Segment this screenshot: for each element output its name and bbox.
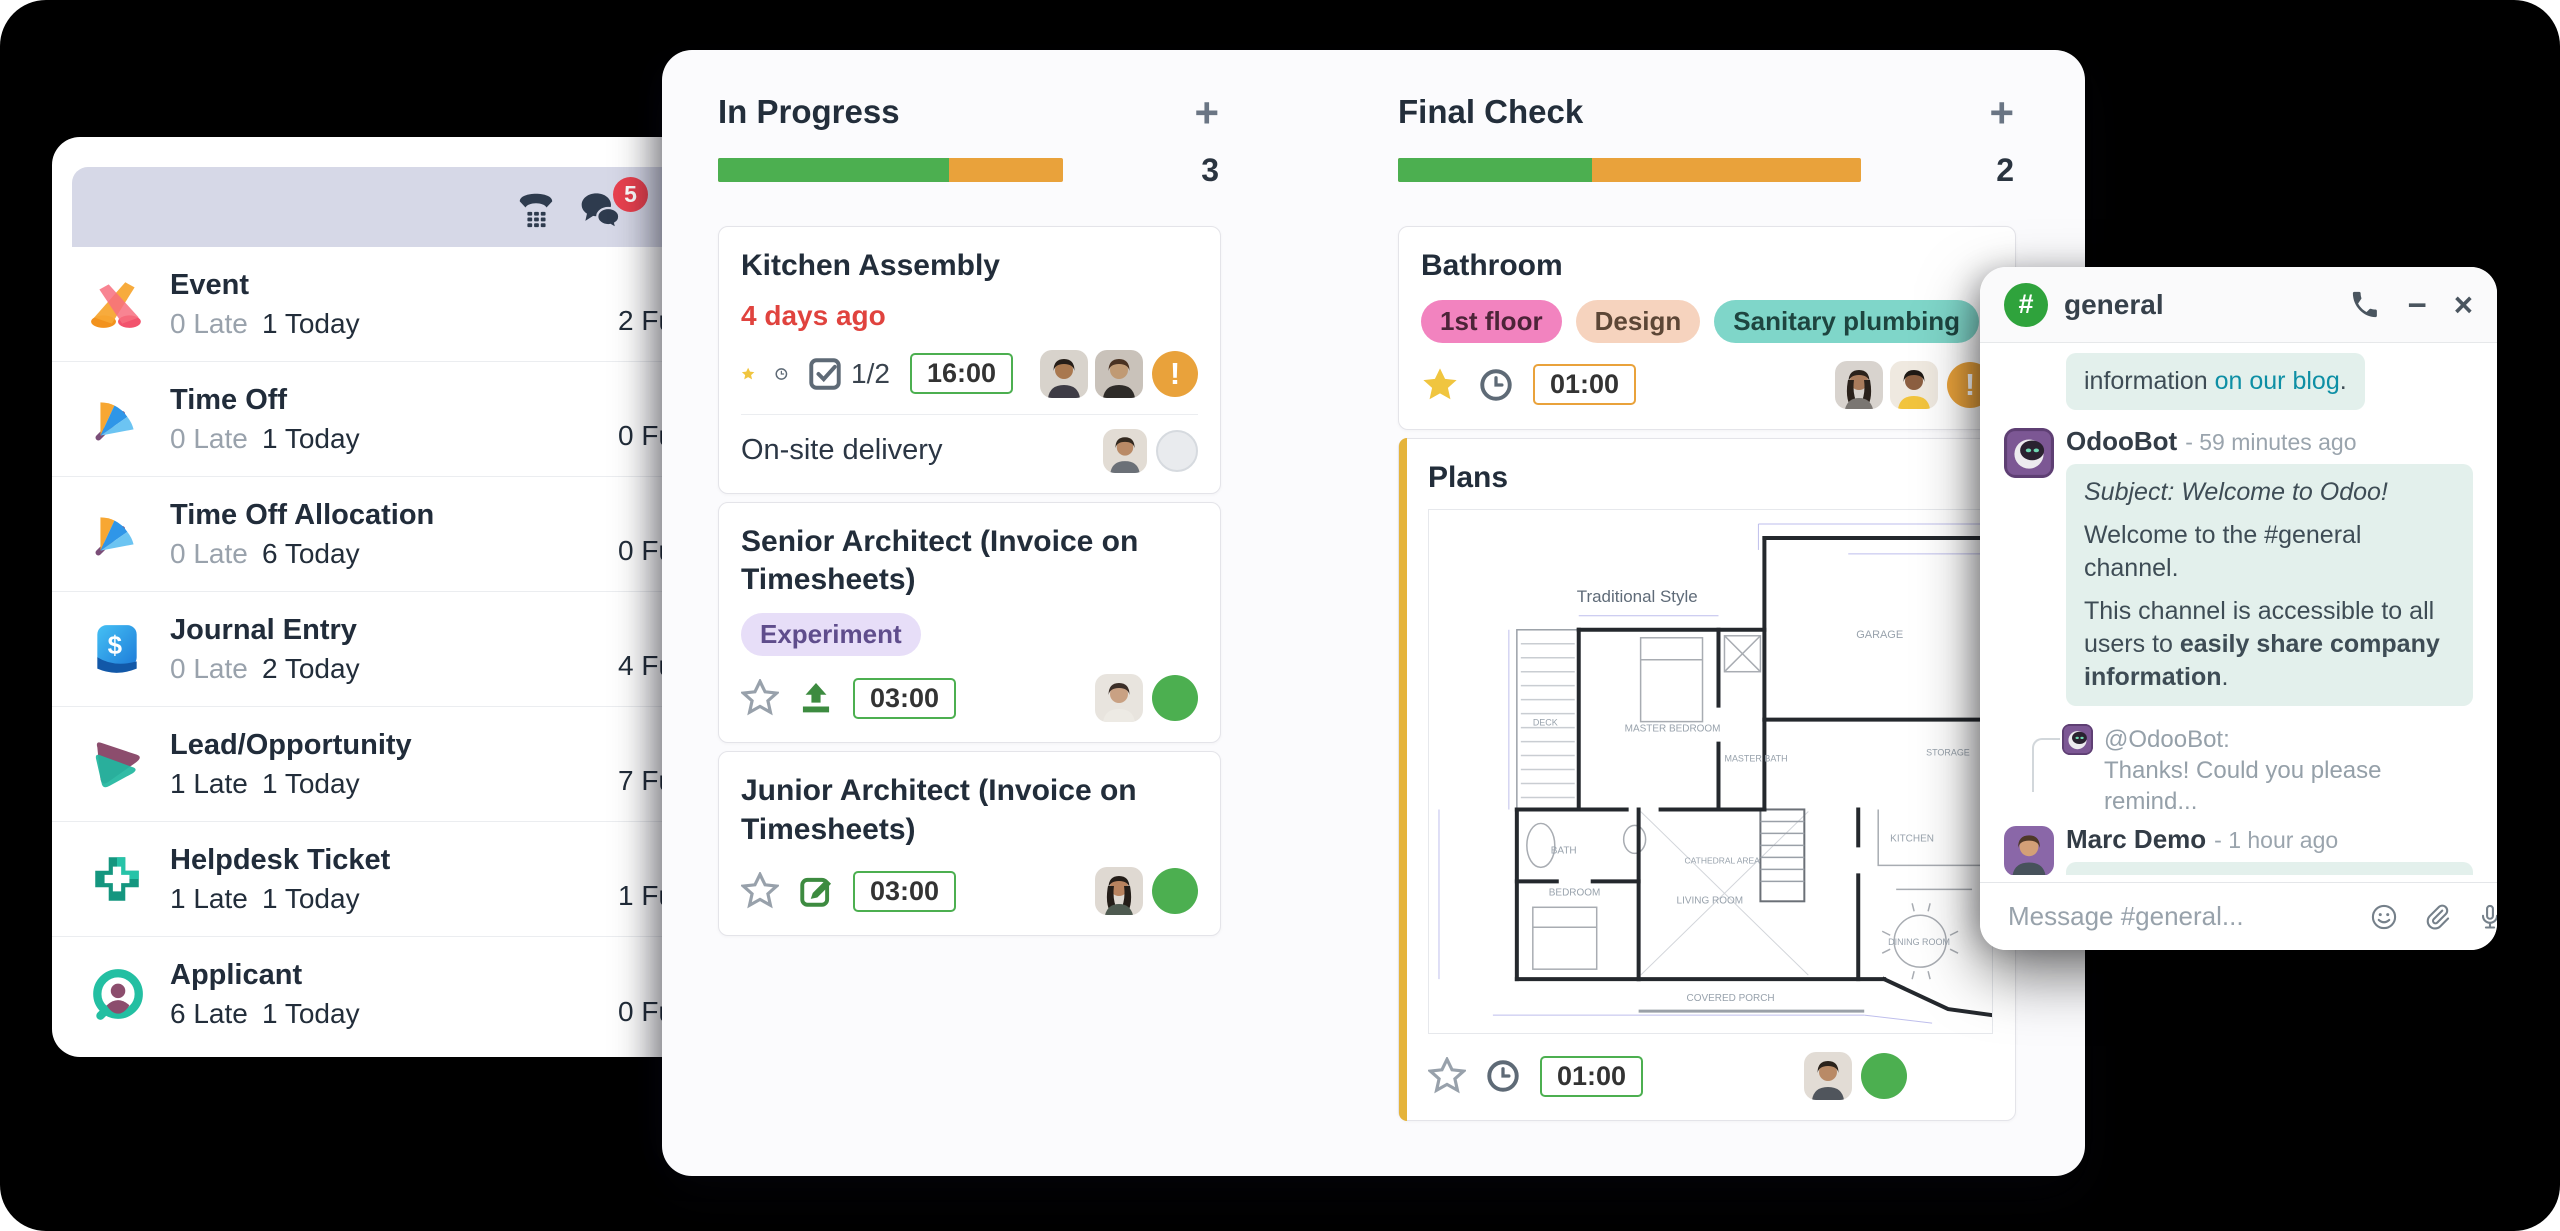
avatar (1095, 350, 1143, 398)
allocated-hours-chip[interactable]: 16:00 (910, 353, 1013, 394)
subtask-row[interactable]: On-site delivery (741, 414, 1198, 473)
avatar (1095, 674, 1143, 722)
late-count: 0 Late (170, 538, 262, 570)
tag-1st-floor: 1st floor (1421, 300, 1562, 343)
floorplan-style-label: Traditional Style (1577, 587, 1698, 606)
svg-text:MASTER BEDROOM: MASTER BEDROOM (1625, 724, 1721, 735)
kanban-column-final-check: Final Check + 2 Bathroom 1st floor Desig… (1398, 94, 2016, 1129)
channel-hash-icon: # (2004, 283, 2048, 327)
today-count: 1 Today (262, 423, 360, 455)
message-bubble: Subject: Welcome to Odoo! Welcome to the… (2066, 464, 2473, 706)
odoobot-avatar-small (2062, 724, 2093, 755)
activity-summary-panel: 5 Event 0 Late 1 Today 2 Fu (52, 137, 700, 1057)
kanban-card-plans[interactable]: Plans (1398, 438, 2016, 1121)
channel-name: general (2064, 289, 2164, 321)
checklist-progress[interactable]: 1/2 (808, 357, 890, 391)
chat-window: # general − × information on our blog. O… (1980, 267, 2497, 950)
card-title: Plans (1428, 459, 1993, 497)
unread-count-badge: 5 (613, 177, 648, 212)
card-title: Bathroom (1421, 247, 1993, 285)
late-count: 6 Late (170, 998, 262, 1030)
activity-label: Journal Entry (170, 614, 360, 647)
avatar (1835, 361, 1883, 409)
chat-composer (1980, 882, 2497, 950)
activity-row-journal-entry[interactable]: $ Journal Entry 0 Late 2 Today 4 Fu (52, 592, 700, 707)
star-filled-icon[interactable] (1421, 366, 1459, 404)
column-progress-bar[interactable] (1398, 158, 1861, 182)
activity-label: Time Off (170, 384, 360, 417)
clock-icon[interactable] (775, 357, 788, 391)
column-record-count: 2 (1996, 152, 2014, 189)
svg-text:BATH: BATH (1551, 845, 1577, 856)
allocated-hours-chip[interactable]: 03:00 (853, 678, 956, 719)
card-title: Kitchen Assembly (741, 247, 1198, 285)
today-count: 1 Today (262, 883, 360, 915)
helpdesk-app-icon (88, 850, 146, 908)
svg-text:MASTER BATH: MASTER BATH (1724, 754, 1787, 764)
add-card-button[interactable]: + (1989, 96, 2014, 130)
chat-message-list: information on our blog. OdooBot- 59 min… (1980, 343, 2497, 875)
phone-icon[interactable] (515, 187, 557, 229)
message-input[interactable] (2006, 900, 2345, 933)
checklist-ratio: 1/2 (851, 358, 890, 390)
time-off-app-icon (88, 390, 146, 448)
message-timestamp: - 1 hour ago (2214, 827, 2338, 853)
kanban-card-bathroom[interactable]: Bathroom 1st floor Design Sanitary plumb… (1398, 226, 2016, 429)
tag-sanitary-plumbing: Sanitary plumbing (1714, 300, 1979, 343)
activity-label: Time Off Allocation (170, 499, 434, 532)
svg-text:GARAGE: GARAGE (1856, 629, 1903, 641)
journal-entry-app-icon: $ (88, 620, 146, 678)
odoobot-avatar (2004, 428, 2054, 478)
star-filled-icon[interactable] (741, 355, 755, 393)
svg-text:CATHEDRAL AREA: CATHEDRAL AREA (1685, 855, 1761, 865)
avatar (1095, 867, 1143, 915)
star-outline-icon[interactable] (741, 679, 779, 717)
kanban-card-kitchen-assembly[interactable]: Kitchen Assembly 4 days ago (718, 226, 1221, 493)
message-odoobot: OdooBot- 59 minutes ago Subject: Welcome… (2004, 426, 2473, 706)
activity-row-applicant[interactable]: Applicant 6 Late 1 Today 0 Fu (52, 937, 700, 1052)
edit-icon[interactable] (799, 874, 833, 908)
checklist-icon (808, 357, 842, 391)
activity-row-helpdesk-ticket[interactable]: Helpdesk Ticket 1 Late 1 Today 1 Fu (52, 822, 700, 937)
svg-text:DECK: DECK (1533, 718, 1558, 728)
star-outline-icon[interactable] (1428, 1057, 1466, 1095)
activity-row-event[interactable]: Event 0 Late 1 Today 2 Fu (52, 247, 700, 362)
floor-plan-attachment: Traditional Style DECK MASTER BEDROOM MA… (1428, 509, 1993, 1034)
kanban-card-junior-architect[interactable]: Junior Architect (Invoice on Timesheets)… (718, 751, 1221, 936)
reply-author: @OdooBot: (2104, 724, 2473, 755)
svg-text:BEDROOM: BEDROOM (1549, 887, 1601, 898)
avatar (1804, 1052, 1852, 1100)
kanban-card-senior-architect[interactable]: Senior Architect (Invoice on Timesheets)… (718, 502, 1221, 744)
status-circle-gray[interactable] (1156, 430, 1198, 472)
chat-header: # general − × (1980, 267, 2497, 343)
minimize-button[interactable]: − (2407, 288, 2426, 321)
activity-list: Event 0 Late 1 Today 2 Fu Time Off (52, 247, 700, 1052)
card-title: Senior Architect (Invoice on Timesheets) (741, 523, 1198, 600)
kanban-board-panel: In Progress + 3 Kitchen Assembly 4 days … (662, 50, 2085, 1176)
status-circle-green[interactable] (1152, 675, 1198, 721)
message-timestamp: - 59 minutes ago (2185, 429, 2356, 455)
today-count: 1 Today (262, 998, 360, 1030)
column-record-count: 3 (1201, 152, 1219, 189)
tag-design: Design (1576, 300, 1701, 343)
priority-alert-badge: ! (1152, 351, 1198, 397)
reply-preview: Thanks! Could you please remind... (2104, 755, 2473, 817)
activity-label: Applicant (170, 959, 360, 992)
marc-avatar (2004, 826, 2054, 875)
deadline-overdue-label: 4 days ago (741, 300, 1198, 332)
call-icon[interactable] (2350, 290, 2380, 320)
card-title: Junior Architect (Invoice on Timesheets) (741, 772, 1198, 849)
event-app-icon (88, 275, 146, 333)
emoji-icon[interactable] (2370, 903, 2398, 931)
blog-link[interactable]: on our blog (2215, 367, 2340, 395)
today-count: 2 Today (262, 653, 360, 685)
activity-row-time-off-allocation[interactable]: Time Off Allocation 0 Late 6 Today 0 Fu (52, 477, 700, 592)
activity-label: Event (170, 269, 360, 302)
column-title: In Progress (718, 94, 1221, 130)
avatar (1890, 361, 1938, 409)
status-circle-green[interactable] (1152, 868, 1198, 914)
avatar (1103, 429, 1147, 473)
kanban-column-in-progress: In Progress + 3 Kitchen Assembly 4 days … (718, 94, 1221, 944)
svg-text:KITCHEN: KITCHEN (1890, 833, 1934, 844)
status-circle-green[interactable] (1861, 1053, 1907, 1099)
marketing-collage: 5 Event 0 Late 1 Today 2 Fu (0, 0, 2560, 1231)
late-count: 0 Late (170, 308, 262, 340)
late-count: 0 Late (170, 423, 262, 455)
message-bubble: Building B3, second floor to the right :… (2066, 862, 2473, 875)
activity-row-lead-opportunity[interactable]: Lead/Opportunity 1 Late 1 Today 7 Fu (52, 707, 700, 822)
today-count: 1 Today (262, 768, 360, 800)
add-card-button[interactable]: + (1194, 96, 1219, 130)
svg-text:DINING ROOM: DINING ROOM (1888, 937, 1950, 947)
time-off-allocation-app-icon (88, 505, 146, 563)
message-marc-demo: Marc Demo- 1 hour ago Building B3, secon… (2004, 824, 2473, 875)
svg-text:LIVING ROOM: LIVING ROOM (1677, 895, 1743, 906)
tag-experiment: Experiment (741, 613, 921, 656)
recruitment-app-icon (88, 966, 146, 1024)
svg-text:STORAGE: STORAGE (1926, 748, 1970, 758)
microphone-icon[interactable] (2476, 903, 2497, 931)
activity-row-time-off[interactable]: Time Off 0 Late 1 Today 0 Fu (52, 362, 700, 477)
close-icon[interactable]: × (2454, 288, 2473, 321)
upload-icon[interactable] (799, 681, 833, 715)
message-author: OdooBot (2066, 426, 2177, 456)
attachment-icon[interactable] (2423, 903, 2451, 931)
message-author: Marc Demo (2066, 824, 2206, 854)
allocated-hours-chip[interactable]: 03:00 (853, 871, 956, 912)
allocated-hours-chip[interactable]: 01:00 (1533, 364, 1636, 405)
column-title: Final Check (1398, 94, 2016, 130)
floor-plan-image: Traditional Style DECK MASTER BEDROOM MA… (1429, 510, 1992, 1033)
column-progress-bar[interactable] (718, 158, 1063, 182)
today-count: 1 Today (262, 308, 360, 340)
activity-label: Lead/Opportunity (170, 729, 412, 762)
star-outline-icon[interactable] (741, 872, 779, 910)
late-count: 1 Late (170, 768, 262, 800)
svg-text:COVERED PORCH: COVERED PORCH (1687, 993, 1775, 1004)
svg-text:$: $ (108, 632, 123, 660)
subtask-title: On-site delivery (741, 434, 942, 467)
avatar (1040, 350, 1088, 398)
message-bubble-partial: information on our blog. (2066, 353, 2365, 410)
activity-panel-header: 5 (72, 167, 680, 247)
clock-icon[interactable] (1479, 368, 1513, 402)
activity-label: Helpdesk Ticket (170, 844, 390, 877)
reply-quote[interactable]: @OdooBot: Thanks! Could you please remin… (2004, 724, 2473, 818)
allocated-hours-chip[interactable]: 01:00 (1540, 1056, 1643, 1097)
today-count: 6 Today (262, 538, 360, 570)
crm-app-icon (88, 735, 146, 793)
clock-icon[interactable] (1486, 1059, 1520, 1093)
late-count: 1 Late (170, 883, 262, 915)
late-count: 0 Late (170, 653, 262, 685)
